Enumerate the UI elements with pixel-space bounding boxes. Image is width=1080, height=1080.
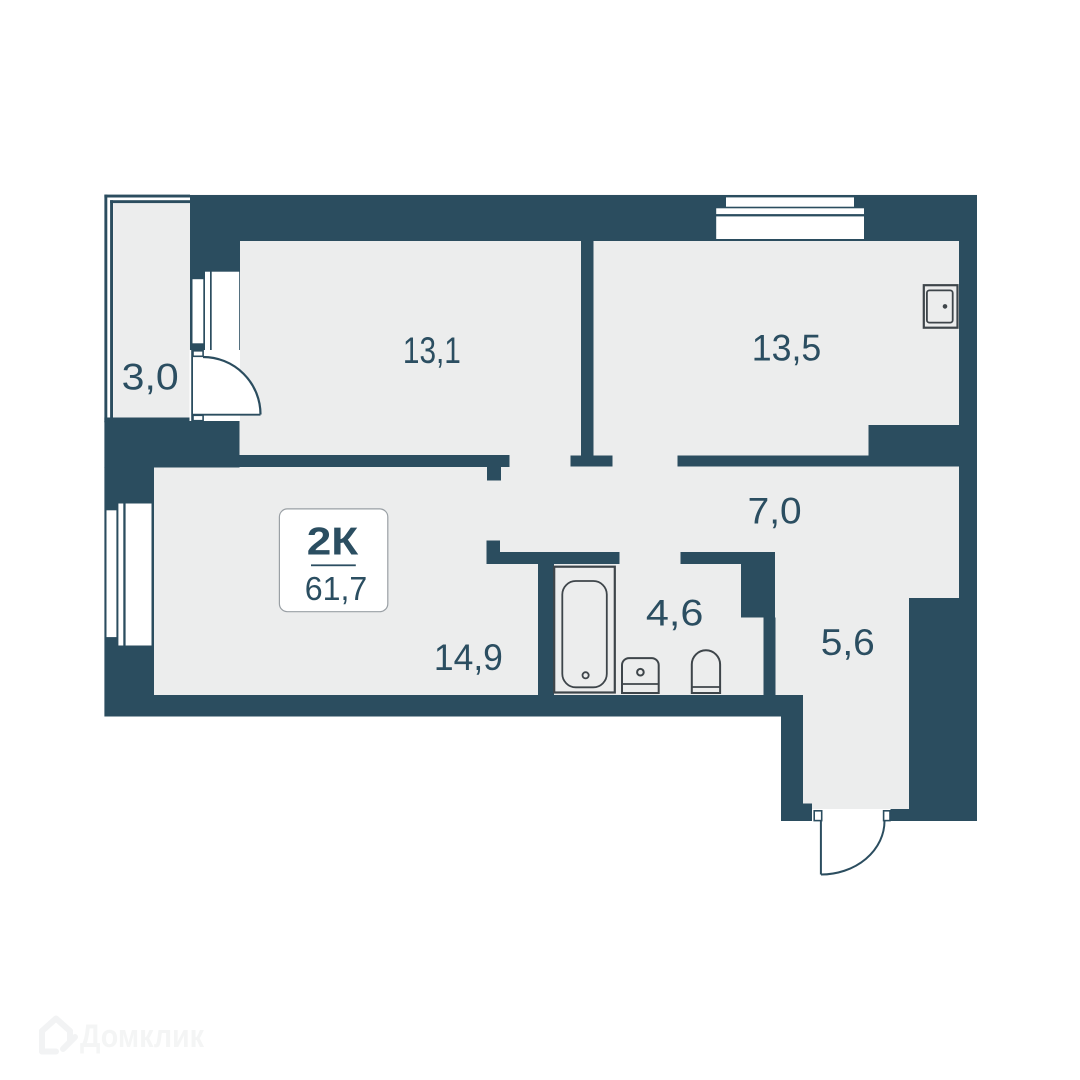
svg-text:61,7: 61,7 bbox=[305, 570, 368, 607]
svg-text:3,0: 3,0 bbox=[122, 356, 179, 398]
svg-text:4,6: 4,6 bbox=[646, 591, 704, 633]
svg-text:13,5: 13,5 bbox=[752, 327, 822, 369]
svg-text:5,6: 5,6 bbox=[821, 621, 875, 663]
svg-text:Домклик: Домклик bbox=[80, 1018, 205, 1054]
svg-text:13,1: 13,1 bbox=[403, 329, 461, 371]
svg-text:2К: 2К bbox=[307, 521, 359, 564]
svg-text:7,0: 7,0 bbox=[748, 490, 802, 532]
svg-text:14,9: 14,9 bbox=[434, 636, 503, 678]
